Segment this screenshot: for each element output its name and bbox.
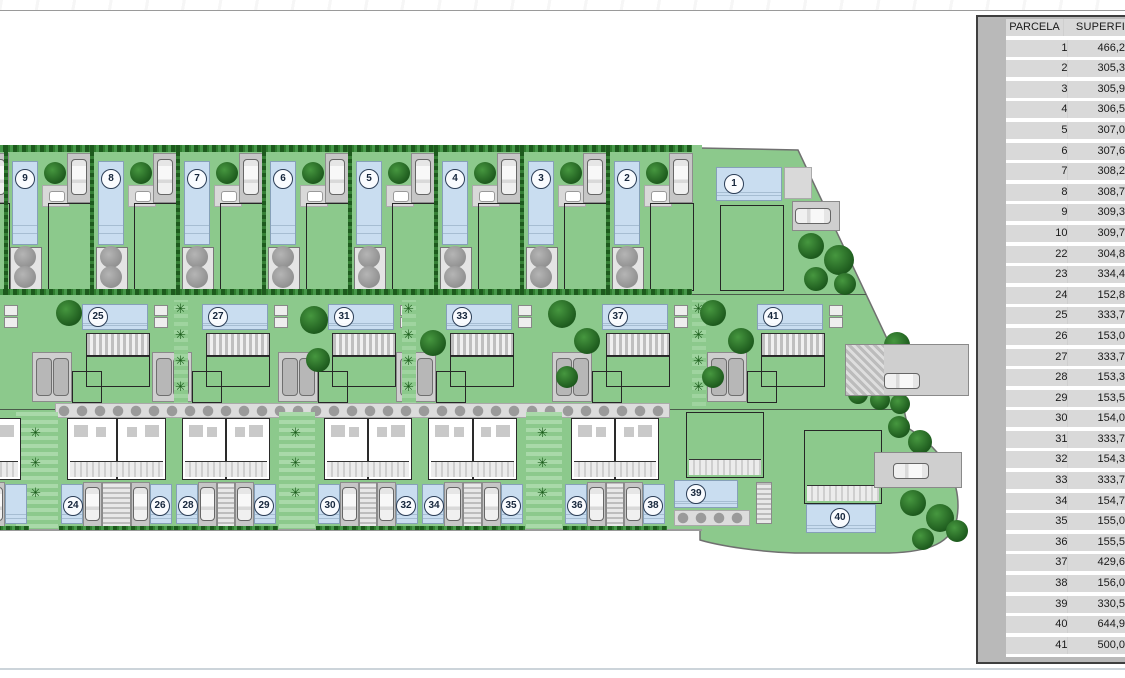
table-row: 38156,0 [1006,575,1125,592]
terrace [185,461,267,477]
stairs [463,482,482,528]
superficie-cell: 307,0 [1067,122,1125,139]
hedge [563,526,667,530]
car-icon [53,358,69,396]
palm-garden: ✳✳✳ [279,412,315,528]
table-row: 5307,0 [1006,122,1125,139]
parcel-number-badge: 29 [254,496,274,516]
house-floorplan [48,203,92,291]
tree-icon [420,330,446,356]
parcela-cell: 8 [1006,184,1067,201]
driveway [131,482,150,528]
hedge [520,145,606,152]
table-row: 40644,9 [1006,616,1125,633]
superficie-cell: 153,0 [1067,328,1125,345]
superficie-cell: 333,7 [1067,307,1125,324]
parcela-cell: 31 [1006,431,1067,448]
table-row: 1466,2 [1006,40,1125,57]
parcela-cell: 34 [1006,493,1067,510]
house-floorplan [324,418,412,480]
car-icon [243,159,259,195]
site-plan: 9 8 7 [0,0,980,665]
tree-icon [14,246,36,268]
tree-icon [560,162,582,184]
truck-icon [893,463,929,479]
table-header-row: PARCELASUPERFI [1006,19,1125,36]
car-icon [282,358,298,396]
superficie-cell: 305,9 [1067,81,1125,98]
house-floorplan [134,203,178,291]
villa-unit: 37 [590,295,702,410]
parcela-cell: 37 [1006,554,1067,571]
hedge [176,145,262,152]
tree-icon [556,366,578,388]
tree-icon [702,366,724,388]
palm-tree-icon: ✳ [30,456,41,469]
palm-tree-icon: ✳ [403,328,414,341]
tree-icon [824,245,854,275]
tree-icon [302,162,324,184]
parcela-cell: 5 [1006,122,1067,139]
screen: 9 8 7 [0,0,1125,678]
parcela-cell: 41 [1006,637,1067,654]
hedge [176,152,180,289]
stairs [217,482,235,528]
pool-equipment [518,305,532,316]
garden-table [135,191,151,202]
tree-icon [530,246,552,268]
villa-unit: 2 [606,145,692,295]
parcel-number-badge: 34 [424,496,444,516]
parcel-number-badge: 2 [617,169,637,189]
car-icon [446,487,461,521]
parcel-number-badge: 26 [150,496,170,516]
tree-icon [616,266,638,288]
table-row: 22304,8 [1006,246,1125,263]
tree-icon [946,520,968,542]
table-row: 37429,6 [1006,554,1125,571]
palm-tree-icon: ✳ [537,456,548,469]
superficie-cell: 153,3 [1067,369,1125,386]
terrace [70,461,163,477]
driveway [377,482,396,528]
car-icon [379,487,394,521]
palm-hedge: ✳✳✳✳ [174,300,188,406]
table-row: 4306,5 [1006,101,1125,118]
palm-hedge: ✳✳✳✳ [402,300,416,406]
palm-tree-icon: ✳ [403,302,414,315]
parcel-number-badge: 25 [88,307,108,327]
parcel-number-badge: 27 [208,307,228,327]
table-row: 32154,3 [1006,451,1125,468]
car-icon [795,208,831,224]
tree-icon [700,300,726,326]
patio [354,247,386,291]
superficie-cell: 152,8 [1067,287,1125,304]
superficie-cell: 429,6 [1067,554,1125,571]
table-row: 6307,6 [1006,143,1125,160]
garden-table [479,191,495,202]
superficie-cell: 153,5 [1067,390,1125,407]
house-floorplan [428,418,517,480]
pool-equipment [674,317,688,328]
hedge [174,526,278,530]
tree-icon [130,162,152,184]
tree-icon [474,162,496,184]
pool-equipment [674,305,688,316]
villa-unit: 6 [262,145,348,295]
table-row: 23334,4 [1006,266,1125,283]
palm-tree-icon: ✳ [175,328,186,341]
driveway [497,153,521,203]
table-row: 35155,0 [1006,513,1125,530]
garden-table [651,191,667,202]
car-icon [884,373,920,389]
palm-tree-icon: ✳ [693,354,704,367]
tree-icon [306,348,330,372]
tree-icon [100,246,122,268]
villa-unit [0,295,32,410]
palm-tree-icon: ✳ [537,426,548,439]
terrace [784,167,812,199]
garden-table [221,191,237,202]
house-floorplan [747,371,777,403]
superficie-cell: 333,7 [1067,431,1125,448]
villa-unit: 1 [700,145,875,295]
terrace [431,461,514,477]
car-icon [329,159,345,195]
driveway [669,153,693,203]
superficie-cell: 156,0 [1067,575,1125,592]
hedge [0,526,29,530]
tree-icon [14,266,36,288]
tree-icon [646,162,668,184]
parcela-cell: 9 [1006,204,1067,221]
townhouse-block: 28 29 [174,410,278,530]
parcel-number-badge: 41 [763,307,783,327]
table-row: 28153,3 [1006,369,1125,386]
table-row: 3305,9 [1006,81,1125,98]
villa-unit: 7 [176,145,262,295]
house-floorplan [318,371,348,403]
hedge [316,526,420,530]
parcela-cell: 30 [1006,410,1067,427]
tree-icon [216,162,238,184]
garden-table [565,191,581,202]
table-row: 34154,7 [1006,493,1125,510]
palm-tree-icon: ✳ [290,456,301,469]
car-icon [589,487,604,521]
patio [612,247,644,291]
car-icon [237,487,252,521]
villa-unit: 5 [348,145,434,295]
superficie-cell: 308,7 [1067,184,1125,201]
hedge [520,152,524,289]
superficie-cell: 500,0 [1067,637,1125,654]
pool-equipment [274,305,288,316]
driveway [482,482,501,528]
tree-icon [890,394,910,414]
car-icon [415,159,431,195]
house-floorplan [436,371,466,403]
stairs [359,482,377,528]
palm-tree-icon: ✳ [403,380,414,393]
pool-equipment [4,317,18,328]
pergola-roof [606,333,670,357]
house-floorplan [192,371,222,403]
house-floorplan [592,371,622,403]
parcela-cell: 36 [1006,534,1067,551]
parcel-number-badge: 4 [445,169,465,189]
hedge [606,145,692,152]
superficie-cell: 308,2 [1067,163,1125,180]
house-floorplan [67,418,166,480]
car-icon [133,487,148,521]
parcela-cell: 7 [1006,163,1067,180]
table-row: 25333,7 [1006,307,1125,324]
tree-icon [798,233,824,259]
stairs [756,482,772,524]
parcel-number-badge: 32 [396,496,416,516]
palm-tree-icon: ✳ [30,486,41,499]
townhouse-block [0,410,29,530]
parcel-number-badge: 40 [830,508,850,528]
parcel-number-badge: 3 [531,169,551,189]
terrace [574,461,656,477]
superficie-cell: 155,0 [1067,513,1125,530]
parcel-number-badge: 7 [187,169,207,189]
hedge [4,152,8,289]
tree-icon [100,266,122,288]
driveway [67,153,91,203]
hedge [4,145,90,152]
pool-equipment [4,305,18,316]
superficie-cell: 305,3 [1067,60,1125,77]
patio [268,247,300,291]
parcel-table-panel: PARCELASUPERFI1466,22305,33305,94306,553… [976,15,1125,664]
parcela-cell: 39 [1006,596,1067,613]
car-icon [417,358,433,396]
villa-unit: 33 [434,295,546,410]
house-floorplan [306,203,350,291]
table-row: 30154,0 [1006,410,1125,427]
entrance-road [845,344,969,396]
tree-icon [444,246,466,268]
villa-unit: 39 [672,410,772,532]
parcela-cell: 33 [1006,472,1067,489]
parcela-cell: 3 [1006,81,1067,98]
pergola-roof [332,333,396,357]
palm-tree-icon: ✳ [30,426,41,439]
hedge [90,145,176,152]
townhouse-block: 30 32 [316,410,420,530]
superficie-cell: 304,8 [1067,246,1125,263]
parcela-cell: 38 [1006,575,1067,592]
garden-table [393,191,409,202]
parcel-number-badge: 30 [320,496,340,516]
house-floorplan [686,412,764,478]
pool-equipment [829,317,843,328]
table-row: 39330,5 [1006,596,1125,613]
patio [526,247,558,291]
table-row: 31333,7 [1006,431,1125,448]
tree-icon [44,162,66,184]
car-icon [36,358,52,396]
parcel-number-badge: 8 [101,169,121,189]
parcel-table: PARCELASUPERFI1466,22305,33305,94306,553… [1006,19,1125,657]
car-icon [501,159,517,195]
townhouse-block: 36 38 [563,410,667,530]
hedge [606,152,610,289]
parcela-cell: 4 [1006,101,1067,118]
hedge [420,526,525,530]
palm-tree-icon: ✳ [693,328,704,341]
tree-icon [272,246,294,268]
house-floorplan [220,203,264,291]
car-icon [484,487,499,521]
pool [5,484,27,524]
driveway [792,201,840,231]
villa-unit: 9 [4,145,90,295]
parcel-number-badge: 31 [334,307,354,327]
pergola-roof [86,333,150,357]
house-floorplan [182,418,270,480]
parcela-cell: 23 [1006,266,1067,283]
parcel-number-badge: 33 [452,307,472,327]
table-row: 26153,0 [1006,328,1125,345]
tree-icon [530,266,552,288]
parcela-cell: 40 [1006,616,1067,633]
tree-icon [548,300,576,328]
driveway [624,482,643,528]
tree-icon [358,266,380,288]
page-bottom-rule [0,668,1125,670]
parcela-cell: 24 [1006,287,1067,304]
superficie-cell: 154,3 [1067,451,1125,468]
palm-tree-icon: ✳ [290,486,301,499]
terrace [807,485,879,501]
hedge [434,152,438,289]
pergola-roof [450,333,514,357]
parcel-number-badge: 37 [608,307,628,327]
terrace [689,459,761,475]
house-floorplan [804,430,882,504]
patio [182,247,214,291]
tree-icon [728,328,754,354]
car-icon [0,487,3,521]
patio [440,247,472,291]
car-icon [200,487,215,521]
driveway [198,482,217,528]
superficie-cell: 333,7 [1067,472,1125,489]
stairs [102,482,131,528]
driveway [587,482,606,528]
table-row: 41500,0 [1006,637,1125,654]
parcel-number-badge: 24 [63,496,83,516]
car-icon [85,487,100,521]
house-floorplan [0,418,21,480]
table-row: 2305,3 [1006,60,1125,77]
house-floorplan [571,418,659,480]
hedge [262,145,348,152]
car-icon [626,487,641,521]
parcela-cell: PARCELA [1006,19,1063,36]
table-row: 29153,5 [1006,390,1125,407]
villa-unit: 41 [745,295,857,410]
parcel-number-badge: 1 [724,174,744,194]
superficie-cell: SUPERFI [1063,19,1125,36]
pool-equipment [274,317,288,328]
table-row: 7308,2 [1006,163,1125,180]
house-floorplan [650,203,694,291]
table-row: 33333,7 [1006,472,1125,489]
superficie-cell: 309,3 [1067,204,1125,221]
parcela-cell: 6 [1006,143,1067,160]
townhouse-block: 24 26 [59,410,174,530]
house-floorplan [720,205,784,291]
parcel-number-badge: 36 [567,496,587,516]
hedge [59,526,174,530]
palm-garden: ✳✳✳ [526,412,562,528]
pergola-roof [206,333,270,357]
table-row: 8308,7 [1006,184,1125,201]
superficie-cell: 333,7 [1067,349,1125,366]
parcel-number-badge: 35 [501,496,521,516]
tree-icon [300,306,328,334]
car-icon [156,358,172,396]
garden-table [49,191,65,202]
pool-equipment [154,317,168,328]
tree-icon [616,246,638,268]
hedge [348,152,352,289]
stairs [606,482,624,528]
table-row: 27333,7 [1006,349,1125,366]
house-floorplan [478,203,522,291]
parcela-cell: 22 [1006,246,1067,263]
driveway [340,482,359,528]
house-floorplan [392,203,436,291]
hedge [434,145,520,152]
driveway [583,153,607,203]
driveway [444,482,463,528]
pool [674,480,738,508]
villa-unit: 8 [90,145,176,295]
superficie-cell: 466,2 [1067,40,1125,57]
driveway [235,482,254,528]
patio [96,247,128,291]
villa-unit: 3 [520,145,606,295]
tree-icon [574,328,600,354]
superficie-cell: 307,6 [1067,143,1125,160]
tree-icon [834,273,856,295]
superficie-cell: 334,4 [1067,266,1125,283]
superficie-cell: 155,5 [1067,534,1125,551]
parcel-number-badge: 5 [359,169,379,189]
tree-icon [358,246,380,268]
superficie-cell: 154,0 [1067,410,1125,427]
car-icon [71,159,87,195]
superficie-cell: 306,5 [1067,101,1125,118]
palm-tree-icon: ✳ [403,354,414,367]
parcel-number-badge: 38 [643,496,663,516]
parcel-number-badge: 28 [178,496,198,516]
tree-icon [900,490,926,516]
palm-tree-icon: ✳ [537,486,548,499]
superficie-cell: 644,9 [1067,616,1125,633]
parcela-cell: 27 [1006,349,1067,366]
table-row: 9309,3 [1006,204,1125,221]
townhouse-block: 34 35 [420,410,525,530]
